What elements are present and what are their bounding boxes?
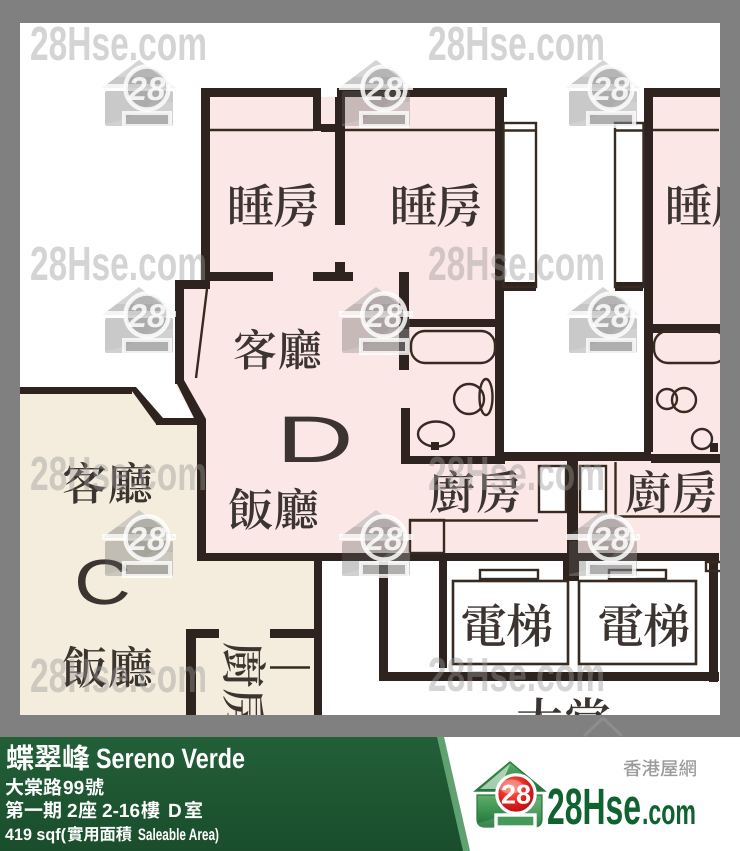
svg-text:Saleable Area): Saleable Area)	[138, 826, 219, 844]
svg-text:2: 2	[67, 801, 78, 822]
svg-text:28Hse.com: 28Hse.com	[30, 18, 207, 71]
svg-text:28Hse: 28Hse	[547, 778, 641, 835]
svg-text:28Hse.com: 28Hse.com	[428, 448, 605, 501]
svg-text:28Hse.com: 28Hse.com	[30, 448, 207, 501]
svg-text:2-16: 2-16	[102, 801, 140, 822]
svg-text:Sereno Verde: Sereno Verde	[96, 743, 245, 774]
svg-text:D: D	[276, 402, 354, 476]
svg-text:28Hse.com: 28Hse.com	[30, 650, 207, 703]
svg-text:.com: .com	[642, 793, 696, 832]
svg-text:D: D	[168, 801, 182, 822]
svg-text:28Hse.com: 28Hse.com	[428, 649, 605, 702]
svg-text:419 sqf(: 419 sqf(	[5, 826, 66, 844]
svg-text:28: 28	[501, 780, 531, 810]
svg-text:28Hse.com: 28Hse.com	[428, 238, 605, 291]
svg-text:28Hse.com: 28Hse.com	[30, 238, 207, 291]
svg-text:28Hse.com: 28Hse.com	[428, 18, 605, 71]
svg-text:99: 99	[63, 778, 84, 799]
